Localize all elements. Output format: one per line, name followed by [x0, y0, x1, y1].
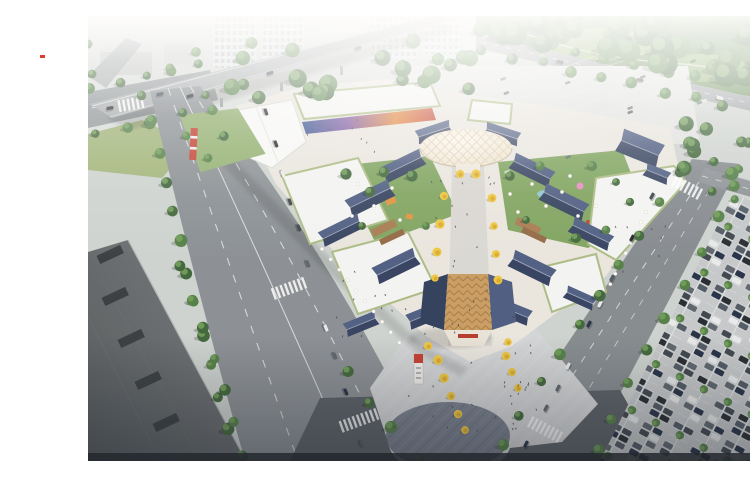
red-dash-marker — [40, 55, 45, 58]
photo-bottom-edge — [88, 453, 750, 461]
sun-haze — [88, 16, 750, 461]
slide-canvas: Aerial rendering of a retail village: wh… — [40, 16, 750, 461]
left-margin — [40, 16, 88, 461]
aerial-rendering — [40, 16, 750, 461]
